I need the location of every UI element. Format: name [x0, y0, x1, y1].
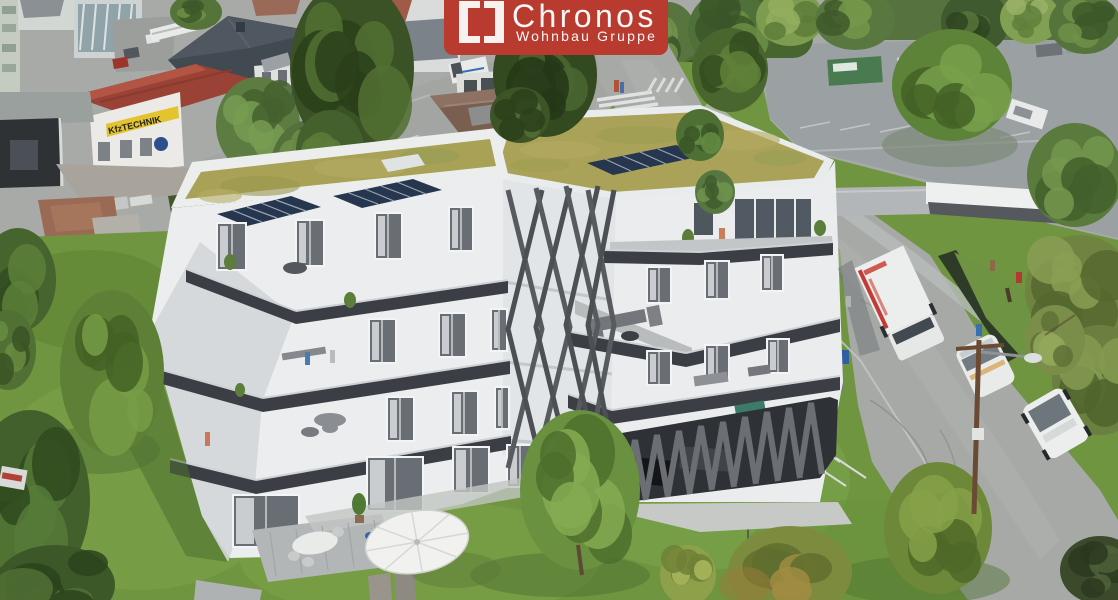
svg-text:Wohnbau Gruppe: Wohnbau Gruppe [516, 28, 657, 44]
